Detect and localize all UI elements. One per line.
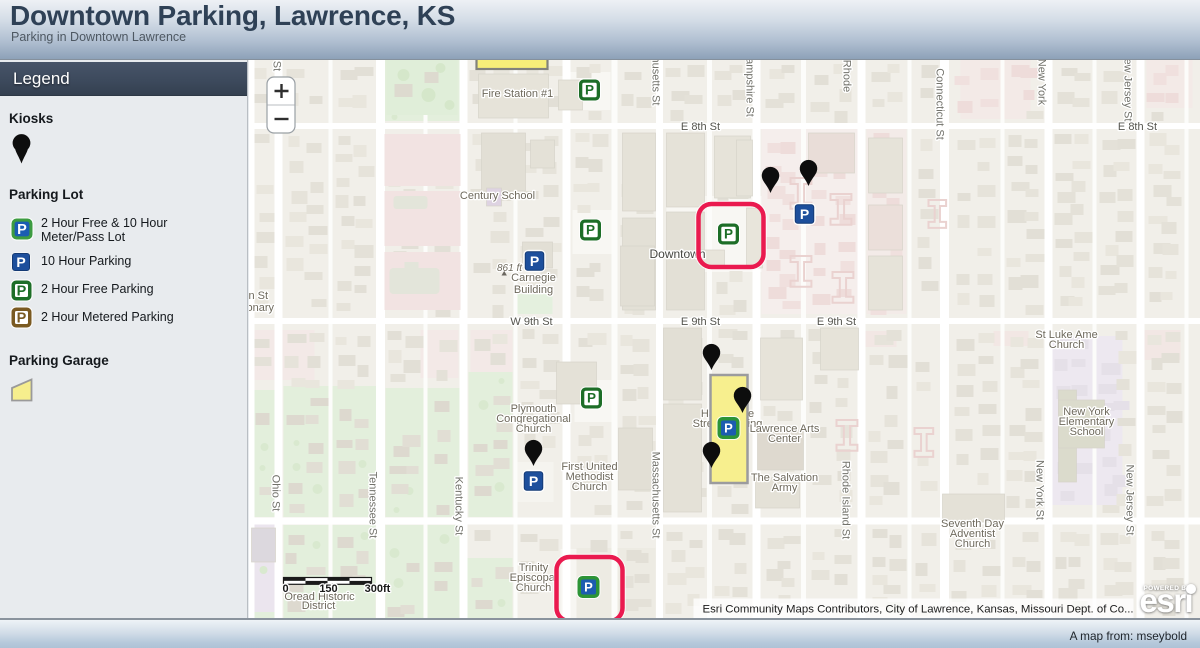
svg-text:Century School: Century School [460, 190, 535, 202]
svg-text:Massachusetts St: Massachusetts St [650, 452, 662, 539]
svg-text:300ft: 300ft [365, 583, 391, 595]
svg-text:Connecticut St: Connecticut St [934, 68, 946, 140]
svg-text:P: P [584, 580, 593, 595]
svg-text:150: 150 [319, 583, 337, 595]
svg-text:P: P [530, 253, 539, 269]
svg-text:P: P [586, 223, 595, 238]
svg-text:esri: esri [1140, 582, 1193, 619]
svg-text:E 8th St: E 8th St [1118, 121, 1157, 133]
svg-text:P: P [529, 473, 538, 489]
svg-text:St: St [271, 61, 283, 71]
svg-text:0: 0 [282, 583, 288, 595]
svg-text:New Hampshire St: New Hampshire St [744, 60, 756, 117]
svg-text:W 9th St: W 9th St [510, 316, 552, 328]
svg-text:Ohio St: Ohio St [270, 475, 282, 512]
svg-text:Building: Building [514, 284, 553, 296]
svg-text:P: P [17, 311, 27, 327]
svg-text:School: School [1070, 426, 1104, 438]
svg-text:Army: Army [772, 482, 798, 494]
svg-text:New Jersey St: New Jersey St [1122, 60, 1134, 121]
svg-text:n St: n St [249, 290, 268, 302]
svg-text:P: P [800, 206, 809, 222]
svg-text:P: P [587, 391, 596, 406]
svg-text:Kentucky St: Kentucky St [453, 477, 465, 536]
svg-text:P: P [17, 284, 27, 300]
svg-text:P: P [17, 222, 27, 238]
svg-text:New Jersey St: New Jersey St [1124, 465, 1136, 536]
svg-text:P: P [724, 227, 733, 242]
svg-text:P: P [16, 254, 25, 270]
svg-text:E 9th St: E 9th St [681, 316, 720, 328]
svg-text:Rhode Island St: Rhode Island St [840, 461, 852, 539]
svg-text:District: District [302, 600, 336, 612]
svg-text:Fire Station #1: Fire Station #1 [482, 88, 554, 100]
svg-text:Esri Community Maps Contributo: Esri Community Maps Contributors, City o… [703, 604, 1134, 616]
svg-text:E 9th St: E 9th St [817, 316, 856, 328]
svg-text:Center: Center [768, 433, 801, 445]
svg-text:onary: onary [249, 302, 275, 314]
svg-text:Tennessee St: Tennessee St [367, 472, 379, 539]
svg-text:P: P [724, 421, 733, 436]
svg-text:Church: Church [955, 538, 990, 550]
svg-text:Rhode: Rhode [841, 60, 853, 92]
svg-text:Church: Church [516, 423, 551, 435]
svg-text:Massachusetts St: Massachusetts St [650, 60, 662, 105]
svg-text:E 8th St: E 8th St [681, 121, 720, 133]
svg-text:Carnegie: Carnegie [511, 272, 556, 284]
svg-text:New York St: New York St [1034, 460, 1046, 520]
svg-text:P: P [585, 83, 594, 98]
svg-text:Church: Church [572, 481, 607, 493]
svg-text:New York: New York [1036, 60, 1048, 106]
svg-text:Church: Church [516, 582, 551, 594]
svg-text:Church: Church [1049, 339, 1084, 351]
